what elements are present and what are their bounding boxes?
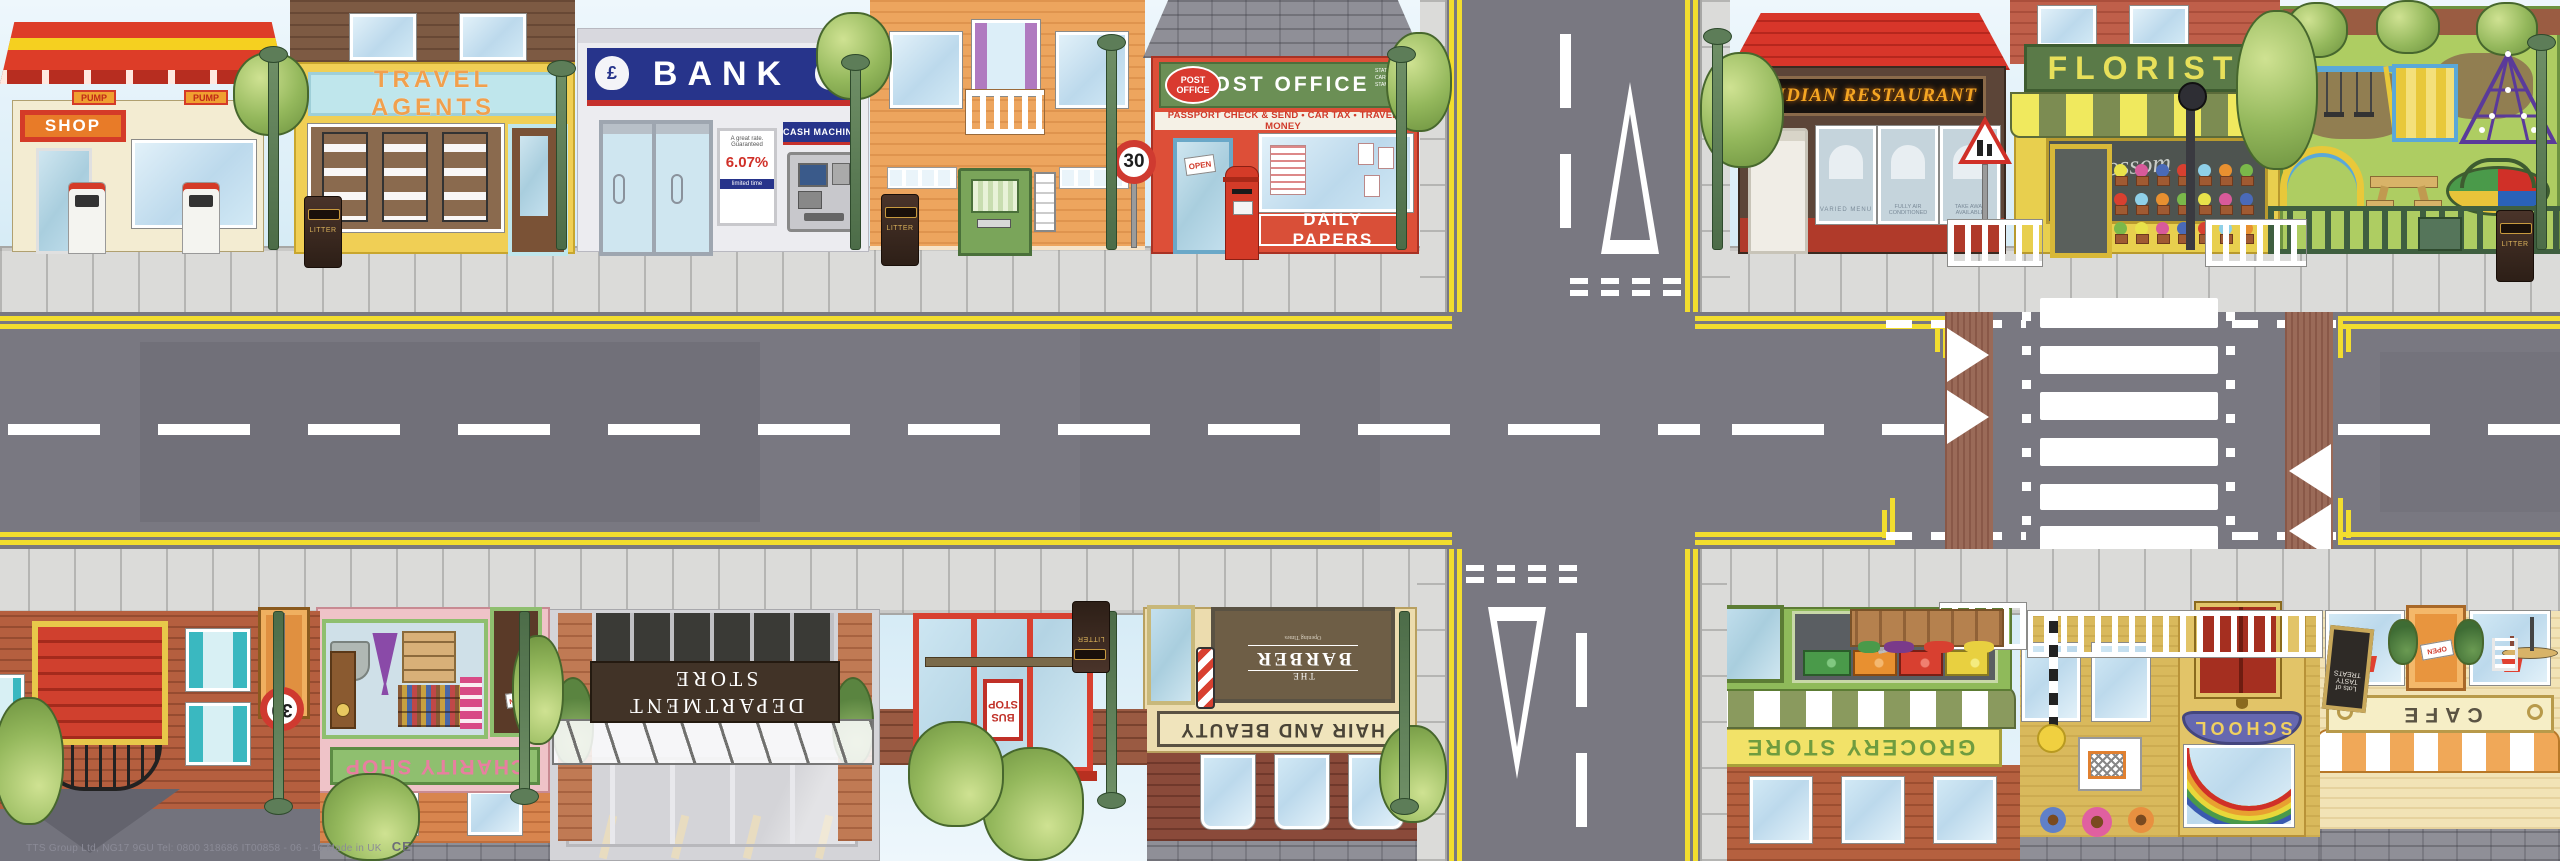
- decor: BUS: [987, 710, 1019, 723]
- street-lamp: [1399, 611, 1410, 803]
- cafe-table: [2502, 615, 2558, 675]
- decor: [2460, 158, 2536, 188]
- playground-gate: [2418, 217, 2462, 251]
- decor: [1378, 147, 1394, 169]
- wall-flower-art: [2082, 807, 2112, 837]
- decor: [1884, 641, 1914, 653]
- bottom-shop-row-wrap: CAFE OPEN Lots of TASTY TREATS: [0, 549, 2560, 861]
- restaurant-window-text: TAKE AWAY AVAILABLE: [1943, 201, 1997, 219]
- decor: [1449, 549, 1454, 861]
- manufacturer-fine-print: TTS Group Ltd, NG17 9GU Tel: 0800 318686…: [26, 839, 412, 854]
- decor: [1829, 145, 1863, 179]
- give-way-arrow: [2289, 444, 2331, 498]
- lamp-head: [1097, 792, 1126, 809]
- decor: OPEN: [1188, 159, 1212, 171]
- decor: [1457, 0, 1462, 312]
- double-yellow-line: [1695, 532, 1895, 537]
- flower-pot: [2114, 164, 2127, 177]
- pot: [2115, 205, 2128, 215]
- postbox: [1225, 166, 1259, 260]
- department-store: DEPARTMENT STORE: [550, 549, 880, 861]
- topiary-bush: [2454, 619, 2484, 665]
- travel-poster: [442, 132, 488, 222]
- street-lamp: [268, 58, 279, 250]
- pot: [2115, 176, 2128, 186]
- give-way-arrow: [1947, 390, 1989, 444]
- flower-pot: [2135, 164, 2148, 177]
- decor: GROCERY STORE: [1745, 734, 1976, 760]
- wall-flower-art: [2128, 807, 2154, 833]
- cafe: CAFE OPEN Lots of TASTY TREATS: [2320, 549, 2560, 861]
- doorbell-panel: [1034, 172, 1056, 232]
- travel-upper-brick: [290, 0, 575, 70]
- decor: [1610, 114, 1650, 240]
- decor: [1924, 641, 1954, 653]
- grocery-upper-window: [1934, 777, 1996, 843]
- florist-upper-window: [2038, 6, 2096, 46]
- junction-pavement: [1700, 549, 1727, 861]
- cash-machine-sign: CASH MACHINE: [783, 122, 859, 142]
- department-store-sign: DEPARTMENT STORE: [590, 661, 840, 723]
- decor: [2530, 617, 2534, 651]
- barber-pole-icon: [1196, 647, 1215, 709]
- decor: FLORIST: [2048, 50, 2241, 87]
- speed-limit-30-sign: 30: [1112, 140, 1156, 184]
- lamp-head: [2527, 34, 2556, 51]
- double-yellow-line: [2338, 540, 2560, 545]
- decor: SCHOOL: [2192, 718, 2293, 739]
- corner-house-window: [186, 703, 250, 765]
- rate-value: 6.07%: [720, 154, 774, 171]
- give-way-arrow: [1947, 328, 1989, 382]
- street-lamp: [850, 66, 861, 250]
- decor: [977, 219, 1011, 228]
- flower-pot: [2198, 193, 2211, 206]
- centre-line: [2338, 424, 2560, 435]
- bus-stop-sign: BUS STOP: [983, 679, 1023, 741]
- give-way-line: [1570, 278, 1690, 284]
- decor: [2489, 113, 2495, 119]
- give-way-line: [1457, 565, 1577, 571]
- decor: THE: [1215, 671, 1391, 681]
- decor: Lots of TASTY TREATS: [2334, 669, 2362, 692]
- zebra-stripe: [2040, 298, 2218, 328]
- tree: [2376, 0, 2440, 54]
- climbing-frame: [2392, 64, 2458, 142]
- shelter-bench: [925, 657, 1079, 667]
- centre-line: [1732, 424, 1944, 435]
- ce-mark: CE: [392, 839, 412, 854]
- house-window: [890, 32, 962, 108]
- decor: [798, 191, 822, 209]
- decor: [1497, 621, 1537, 747]
- decor: [520, 136, 548, 216]
- tree: [2236, 10, 2318, 170]
- topiary-bush: [2388, 619, 2418, 665]
- mannequin: [370, 633, 400, 695]
- pot: [2241, 176, 2254, 186]
- decor: [0, 38, 286, 50]
- decor: [972, 20, 1040, 96]
- flower-pot: [2219, 164, 2232, 177]
- decor: [1223, 177, 1259, 182]
- decor: [1858, 641, 1880, 653]
- decor: [1891, 145, 1925, 179]
- cafe-roof: [2320, 827, 2560, 861]
- pedestrian-railing: [2028, 611, 2322, 657]
- travel-upper-window: [460, 14, 526, 60]
- zebra-stripe: [2040, 484, 2218, 510]
- decor: [2324, 112, 2344, 117]
- decor: [1457, 549, 1462, 861]
- decor: [2178, 82, 2207, 111]
- junction-arm-south: [1417, 549, 1727, 861]
- cafe-awning: [2316, 729, 2560, 773]
- flower-pot: [2156, 222, 2169, 235]
- decor: INDIAN RESTAURANT: [1763, 85, 1977, 107]
- decor: [1685, 549, 1690, 861]
- travel-upper-window: [350, 14, 416, 60]
- decor: limited time: [720, 179, 774, 189]
- decor: [1449, 0, 1454, 312]
- florist-awning: [2010, 92, 2272, 138]
- pedestrian-railing: [2206, 220, 2306, 266]
- litter-label: LITTER: [2501, 241, 2528, 248]
- lamp-head: [1390, 798, 1419, 815]
- flower-pot: [2156, 164, 2169, 177]
- tree: [908, 721, 1004, 827]
- flower-pot: [2219, 193, 2232, 206]
- decor: [798, 163, 828, 187]
- bank-doors: [599, 120, 713, 256]
- flower-pot: [2156, 193, 2169, 206]
- school: SCHOOL: [2020, 549, 2320, 861]
- lamp-head: [264, 798, 293, 815]
- flower-pot: [2114, 222, 2127, 235]
- pot: [2157, 205, 2170, 215]
- pot: [2136, 205, 2149, 215]
- grocery-store: GROCERY STORE: [1700, 549, 2020, 861]
- post-office-window: [1259, 134, 1413, 212]
- flower-pot: [2240, 193, 2253, 206]
- decor: [832, 163, 850, 185]
- decor: [2479, 127, 2485, 133]
- yellow-line-hook: [2346, 324, 2351, 352]
- chest-of-drawers: [402, 631, 456, 683]
- litter-label: LITTER: [309, 227, 336, 234]
- fuel-pump: [182, 182, 220, 254]
- crossing-stud-line: [2226, 312, 2235, 549]
- hair-and-beauty: HAIR AND BEAUTY THE BARBER Opening Times: [1147, 549, 1417, 861]
- decor: TTS Group Ltd, NG17 9GU Tel: 0800 318686…: [26, 843, 382, 854]
- tree: [2476, 2, 2538, 56]
- restaurant-roof: [1730, 8, 2010, 70]
- corner-house-window: [186, 629, 250, 691]
- lamp-head: [1387, 46, 1416, 63]
- pot: [2136, 234, 2149, 244]
- pink-poster: [460, 677, 482, 729]
- produce-stand: [1850, 609, 2004, 647]
- zebra-stripe: [2040, 346, 2218, 374]
- cafe-chalkboard: Lots of TASTY TREATS: [2322, 625, 2375, 713]
- bin-band: [1074, 649, 1106, 660]
- bin-band: [2500, 223, 2532, 234]
- school-roof: [2020, 835, 2320, 861]
- decor: [1685, 0, 1690, 312]
- double-yellow-line: [0, 540, 1452, 545]
- petrol-station: SHOP PUMP PUMP: [0, 0, 290, 312]
- decor: [2508, 54, 2528, 142]
- flower-pot: [2114, 193, 2127, 206]
- street-lamp: [519, 611, 530, 793]
- decor: [2505, 87, 2511, 93]
- side-road-centre-line: [1560, 34, 1571, 272]
- decor: Guaranteed: [720, 142, 774, 148]
- zebra-stripe: [2040, 392, 2218, 420]
- decor: [2326, 72, 2328, 112]
- pot: [2220, 205, 2233, 215]
- bin-band: [885, 207, 917, 218]
- indian-restaurant-sign: INDIAN RESTAURANT: [1754, 76, 1986, 116]
- open-sign: OPEN: [2420, 639, 2454, 660]
- decor: [1270, 145, 1306, 195]
- produce-crate: [1945, 650, 1989, 676]
- decor: OPEN: [2427, 645, 2448, 655]
- yellow-line-hook: [2338, 316, 2343, 358]
- dept-entrance: [596, 613, 834, 661]
- post-office-door: OPEN: [1173, 138, 1233, 254]
- lamp-head: [510, 788, 539, 805]
- lamp-head: [1097, 34, 1126, 51]
- litter-label: LITTER: [1077, 635, 1104, 642]
- decor: DAILY PAPERS: [1261, 210, 1405, 250]
- pump-sign-left: PUMP: [72, 90, 116, 105]
- money-bag-icon: £: [595, 56, 629, 90]
- lamp-head: [841, 54, 870, 71]
- give-way-triangle: [1601, 82, 1659, 254]
- lamp-head: [547, 60, 576, 77]
- produce-crate: [1899, 650, 1943, 676]
- decor: [1964, 641, 1994, 653]
- decor: [2088, 751, 2126, 779]
- zebra-stripe: [2040, 438, 2218, 466]
- open-sign: OPEN: [1184, 154, 1216, 176]
- decor: £: [607, 63, 617, 84]
- pot: [2157, 176, 2170, 186]
- give-way-line: [1570, 290, 1690, 296]
- sign-pole: [1131, 180, 1137, 248]
- double-yellow-line: [1695, 540, 1895, 545]
- street-lamp: [1396, 58, 1407, 250]
- litter-label: LITTER: [886, 225, 913, 232]
- decor: PASSPORT CHECK & SEND • CAR TAX • TRAVEL…: [1155, 110, 1411, 132]
- side-road: [1447, 549, 1700, 861]
- wall-flower-art: [2040, 807, 2066, 833]
- grocery-upper-window: [1842, 777, 1904, 843]
- barber-window-text: THE BARBER Opening Times: [1215, 634, 1391, 681]
- decor: [1232, 189, 1252, 194]
- decor: [1693, 549, 1698, 861]
- decor: [1364, 175, 1380, 197]
- grocery-awning: [1700, 685, 2016, 729]
- junction-arm-north: [1420, 0, 1730, 312]
- decor: CAFE: [2397, 702, 2482, 726]
- cafe-chair: [2492, 638, 2518, 671]
- street-lamp: [1712, 40, 1723, 250]
- pot: [2136, 176, 2149, 186]
- yellow-line-hook: [2338, 498, 2343, 540]
- decor: [2521, 113, 2527, 119]
- decor: [804, 213, 844, 221]
- hair-and-beauty-sign: HAIR AND BEAUTY: [1157, 711, 1407, 747]
- decor: CASH MACHINE: [783, 127, 859, 137]
- main-road: [0, 312, 2560, 549]
- pot: [2199, 176, 2212, 186]
- litter-bin: LITTER: [881, 194, 919, 266]
- decor: [2488, 54, 2508, 142]
- decor: POST: [1181, 75, 1206, 85]
- restaurant-window: FULLY AIR CONDITIONED: [1878, 126, 1938, 224]
- yellow-line-hook: [2346, 510, 2351, 538]
- double-yellow-line: [0, 532, 1452, 537]
- decor: [75, 195, 99, 207]
- decor: [671, 174, 683, 204]
- pump-sign-right: PUMP: [184, 90, 228, 105]
- decor: [1358, 143, 1374, 165]
- rate-poster: A great rate. Guaranteed 6.07% limited t…: [717, 128, 777, 226]
- restaurant-window-text: FULLY AIR CONDITIONED: [1881, 201, 1935, 219]
- beacon-post: [2186, 104, 2195, 250]
- pot: [2241, 205, 2254, 215]
- fuel-pump: [68, 182, 106, 254]
- dept-upper-windows: [566, 757, 858, 847]
- decor: SHOP: [45, 116, 101, 136]
- produce-crate: [1853, 650, 1897, 676]
- lamp-head: [1703, 28, 1732, 45]
- litter-bin: LITTER: [1072, 601, 1110, 673]
- street-lamp: [556, 72, 567, 250]
- decor: [966, 90, 1044, 134]
- street-lamp: [273, 611, 284, 803]
- bin-band: [308, 209, 340, 220]
- decor: DEPARTMENT: [626, 692, 804, 719]
- decor: POST OFFICE: [1196, 73, 1369, 97]
- decor: STOP: [987, 697, 1019, 710]
- decor: [2370, 72, 2372, 112]
- barber-window: THE BARBER Opening Times: [1211, 607, 1395, 703]
- flower-pot: [2240, 164, 2253, 177]
- decor: [1977, 140, 1983, 156]
- decor: [2340, 72, 2342, 112]
- decor: [336, 703, 350, 717]
- pot: [2199, 205, 2212, 215]
- centre-line: [8, 424, 1700, 435]
- pot: [2157, 234, 2170, 244]
- school-rainbow-window: [2184, 745, 2294, 827]
- decor: [2356, 72, 2358, 112]
- hair-door: [1147, 605, 1195, 705]
- decor: [1233, 201, 1253, 215]
- top-shop-row: SHOP PUMP PUMP TRAVEL AGENTS: [0, 0, 2560, 312]
- petrol-shop-sign: SHOP: [20, 110, 126, 142]
- rosette-icon: [2527, 704, 2543, 720]
- street-lamp: [2536, 46, 2547, 250]
- side-road-centre-line: [1576, 589, 1587, 827]
- charity-window: [322, 619, 488, 739]
- tree: [0, 697, 64, 825]
- basketball-hoop: [2078, 737, 2142, 791]
- double-yellow-line: [0, 324, 1452, 329]
- hair-upper-window: [1201, 755, 1255, 829]
- decor: BARBER: [1248, 645, 1357, 671]
- litter-bin: LITTER: [2496, 210, 2534, 282]
- decor: Opening Times: [1215, 634, 1391, 640]
- double-yellow-line: [2338, 316, 2560, 321]
- flower-pot: [2135, 193, 2148, 206]
- belisha-beacon: [2049, 613, 2058, 729]
- decor: PUMP: [81, 93, 107, 103]
- give-way-triangle: [1488, 607, 1546, 779]
- house-balcony: [966, 20, 1044, 138]
- decor: [189, 195, 213, 207]
- rainbow: [2189, 745, 2294, 806]
- restaurant-window-text: VARIED MENU: [1819, 201, 1873, 219]
- bottom-shop-row: CAFE OPEN Lots of TASTY TREATS: [0, 549, 2560, 861]
- decor: TRAVEL AGENTS: [311, 66, 555, 122]
- florist-door: [2050, 144, 2112, 258]
- pedestrian-railing: [1948, 220, 2042, 266]
- post-office-roof: [1143, 0, 1423, 58]
- grocery-upper-window: [1750, 777, 1812, 843]
- decor: [1693, 0, 1698, 312]
- restaurant-window: VARIED MENU: [1816, 126, 1876, 224]
- post-services-banner: PASSPORT CHECK & SEND • CAR TAX • TRAVEL…: [1155, 112, 1411, 130]
- travel-poster: [382, 132, 428, 222]
- school-bell: [2236, 699, 2248, 709]
- flower-pot: [2198, 164, 2211, 177]
- decor: STORE: [672, 665, 758, 692]
- decor: [652, 124, 656, 252]
- double-yellow-line: [2338, 532, 2560, 537]
- post-office-logo: POSTOFFICE: [1165, 66, 1221, 104]
- post-office: POST OFFICE POSTOFFICE STATIONERY CARDS …: [1143, 0, 1423, 312]
- decor: BANK: [653, 55, 791, 94]
- decor: PUMP: [193, 93, 219, 103]
- playmat: SHOP PUMP PUMP TRAVEL AGENTS: [0, 0, 2560, 861]
- florist-upper-window: [2130, 6, 2188, 46]
- decor: [2354, 112, 2374, 117]
- grandfather-clock: [330, 651, 356, 729]
- flower-pot: [2135, 222, 2148, 235]
- decor: OFFICE: [1177, 85, 1210, 95]
- grocery-sign: GROCERY STORE: [1718, 727, 2002, 767]
- decor: [1965, 124, 2005, 160]
- house-vent-windows: [888, 168, 956, 188]
- side-road: [1447, 0, 1700, 312]
- street-lamp: [1106, 46, 1117, 250]
- litter-bin: LITTER: [304, 196, 342, 268]
- decor: [2505, 51, 2511, 57]
- house-door: [958, 168, 1032, 256]
- produce-crate: [1803, 650, 1851, 676]
- decor: [613, 174, 625, 204]
- give-way-line: [1457, 577, 1577, 583]
- florist-sign: FLORIST: [2024, 44, 2264, 92]
- decor: [1987, 144, 1992, 156]
- crossing-stud-line: [2022, 312, 2031, 549]
- lamp-head: [259, 46, 288, 63]
- double-yellow-line: [2338, 324, 2560, 329]
